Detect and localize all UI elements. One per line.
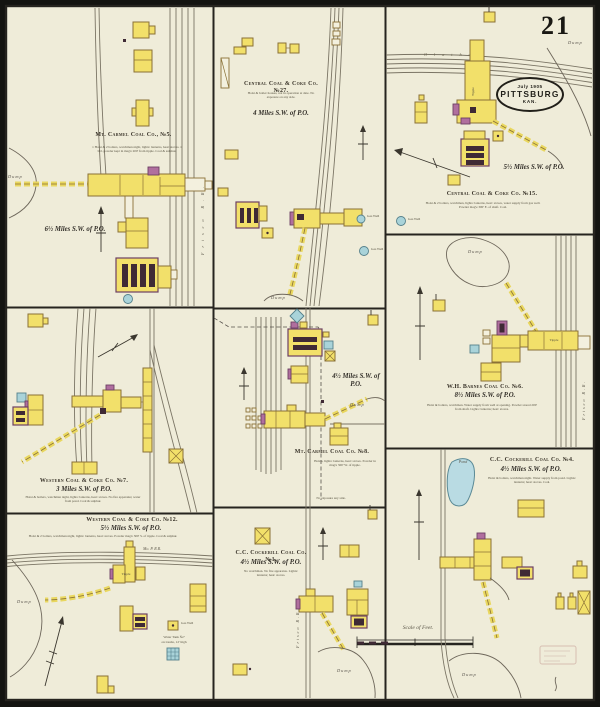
panel-distance-western-7: 3 Miles S.W. of P.O.: [36, 486, 132, 494]
panel-title-western-7: Western Coal & Coke Co. №7.: [28, 478, 140, 485]
railroad-label-frisco: Frisco R.R.: [296, 608, 301, 648]
panel-distance-central-15: 5½ Miles S.W. of P.O.: [494, 164, 574, 172]
panel-note-mt-carmel-5: 1 Hoist & 2 boilers, watchman night, lig…: [92, 145, 182, 153]
dump-label: Dump: [8, 174, 23, 179]
panel-note-barnes-6: Hoist & boilers, watchman. Water supply …: [426, 403, 538, 411]
panel-title-cockerill-4: C.C. Cockerill Coal Co. №4.: [488, 457, 576, 464]
gas-well-label: Gas Well: [367, 214, 384, 218]
gas-well-label: Gas Well: [181, 621, 198, 625]
dump-label: Dump: [468, 249, 483, 254]
panel-title-central-15: Central Coal & Coke Co. №15.: [432, 191, 552, 198]
panel-distance-cockerill-1: 4½ Miles S.W. of P.O.: [240, 559, 302, 567]
tipple-label: Tipple: [112, 572, 140, 576]
sanborn-map-sheet: 21 July 1905 PITTSBURG KAN. Mt. Carmel C…: [0, 0, 600, 707]
water-tank-label-2: on trestle, 12' high: [152, 640, 196, 644]
panel-title-barnes-6: W.H. Barnes Coal Co. №6.: [440, 384, 530, 391]
pond-label: Pond: [450, 460, 476, 465]
panel-title-mt-carmel-5: Mt. Carmel Coal Co., №5.: [76, 132, 191, 139]
panel-title-mt-carmel-8: Mt. Carmel Coal Co. №8.: [292, 449, 372, 456]
dump-label: Dump: [568, 40, 583, 45]
railroad-label-frisco: Frisco R.R.: [201, 182, 206, 255]
scale-of-feet-label: Scale of Feet.: [392, 625, 444, 632]
dump-label: Dump: [462, 672, 477, 677]
railroad-label-frisco: Frisco R.R.: [582, 380, 587, 420]
panel-note-western-12: Hoist & 2 boilers, watchman night, light…: [28, 534, 178, 538]
dump-label: Dump: [337, 668, 352, 673]
panel-note-cockerill-4: Hoist & boilers, watchman night. Water s…: [484, 476, 580, 484]
panel-distance-western-12: 5½ Miles S.W. of P.O.: [96, 525, 166, 533]
panel-note-mt-carmel-8: Hoists, lights: lanterns, heat: stoves. …: [314, 459, 376, 467]
publication-stamp: July 1905 PITTSBURG KAN.: [496, 77, 564, 112]
panel-title-western-12: Western Coal & Coke Co. №12.: [84, 517, 180, 524]
panel-distance-mt-carmel-8: 4½ Miles S.W. of P.O.: [326, 373, 386, 389]
gas-well-label: Gas Well: [408, 217, 425, 221]
dump-label: Dump: [271, 295, 286, 300]
dump-label: Dump: [17, 599, 32, 604]
sheet-number: 21: [541, 11, 571, 41]
panel-distance-mt-carmel-5: 6½ Miles S.W. of P.O.: [30, 226, 120, 234]
panel-distance-barnes-6: 8½ Miles S.W. of P.O.: [442, 392, 528, 400]
panel-note-central-15: Hoist & 2 boilers, watchman, lights: lan…: [424, 201, 542, 209]
tipple-label: Tipple: [471, 87, 475, 96]
railroad-label-olathe: Olathe: [424, 52, 534, 57]
panel-note2-mt-carmel-8: No exposure any side.: [300, 496, 362, 500]
panel-note-central-27: Hoist & boiler houses, not in operation …: [244, 91, 318, 99]
tipple-label: Tipple: [536, 338, 572, 342]
panel-distance-central-27: 4 Miles S.W. of P.O.: [244, 110, 318, 118]
water-tank-label: Water Tank №7: [152, 635, 196, 639]
panel-distance-cockerill-4: 4½ Miles S.W. of P.O.: [496, 466, 566, 474]
dump-label: Dump: [350, 402, 365, 407]
panel-note-cockerill-1: No watchman. No fire apparatus. Lights: …: [238, 569, 304, 577]
gas-well-label: Gas Well: [371, 247, 388, 251]
railroad-label-mo-p: Mo. P. R.R.: [143, 547, 175, 552]
stamp-state: KAN.: [523, 100, 537, 105]
panel-note-western-7: Hoist & boilers, watchman night, lights:…: [22, 495, 144, 503]
